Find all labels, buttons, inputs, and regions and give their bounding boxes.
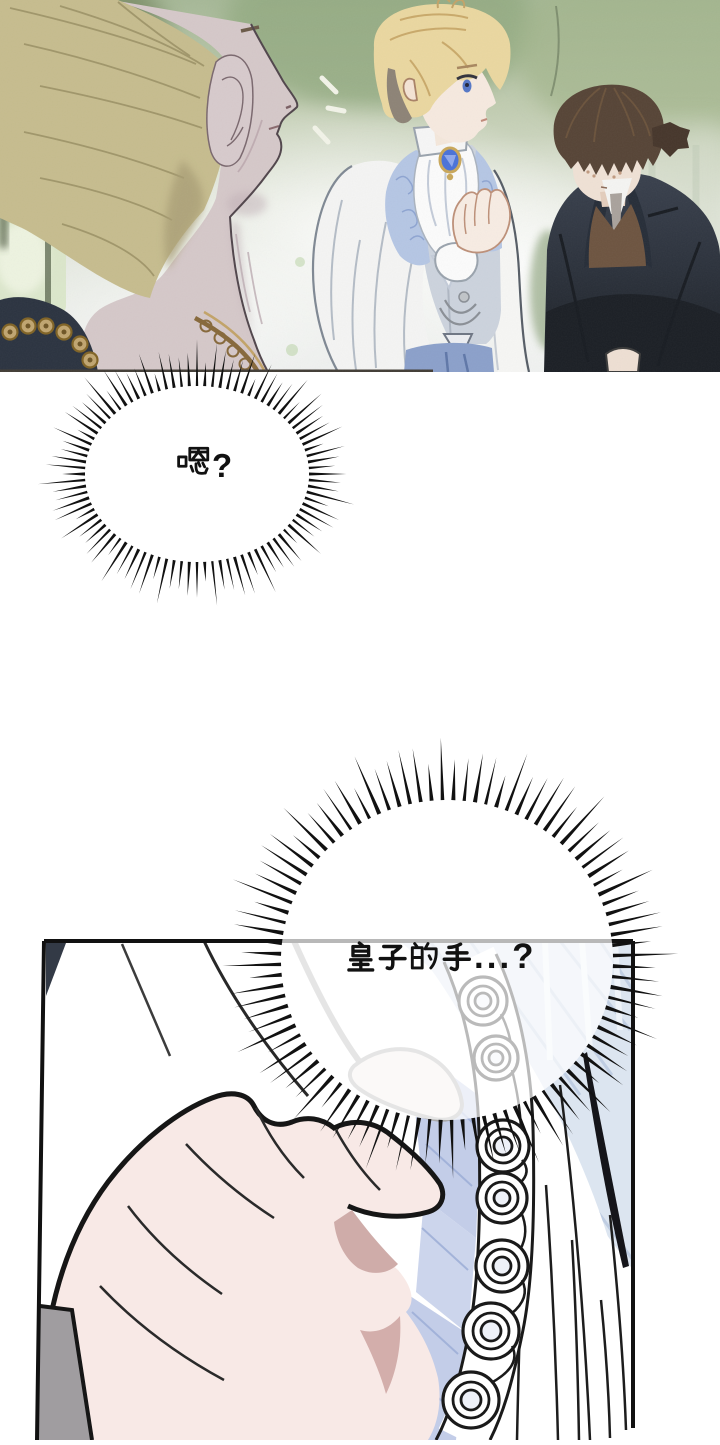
svg-text:...?: ...? (474, 937, 537, 976)
svg-text:?: ? (212, 447, 232, 484)
